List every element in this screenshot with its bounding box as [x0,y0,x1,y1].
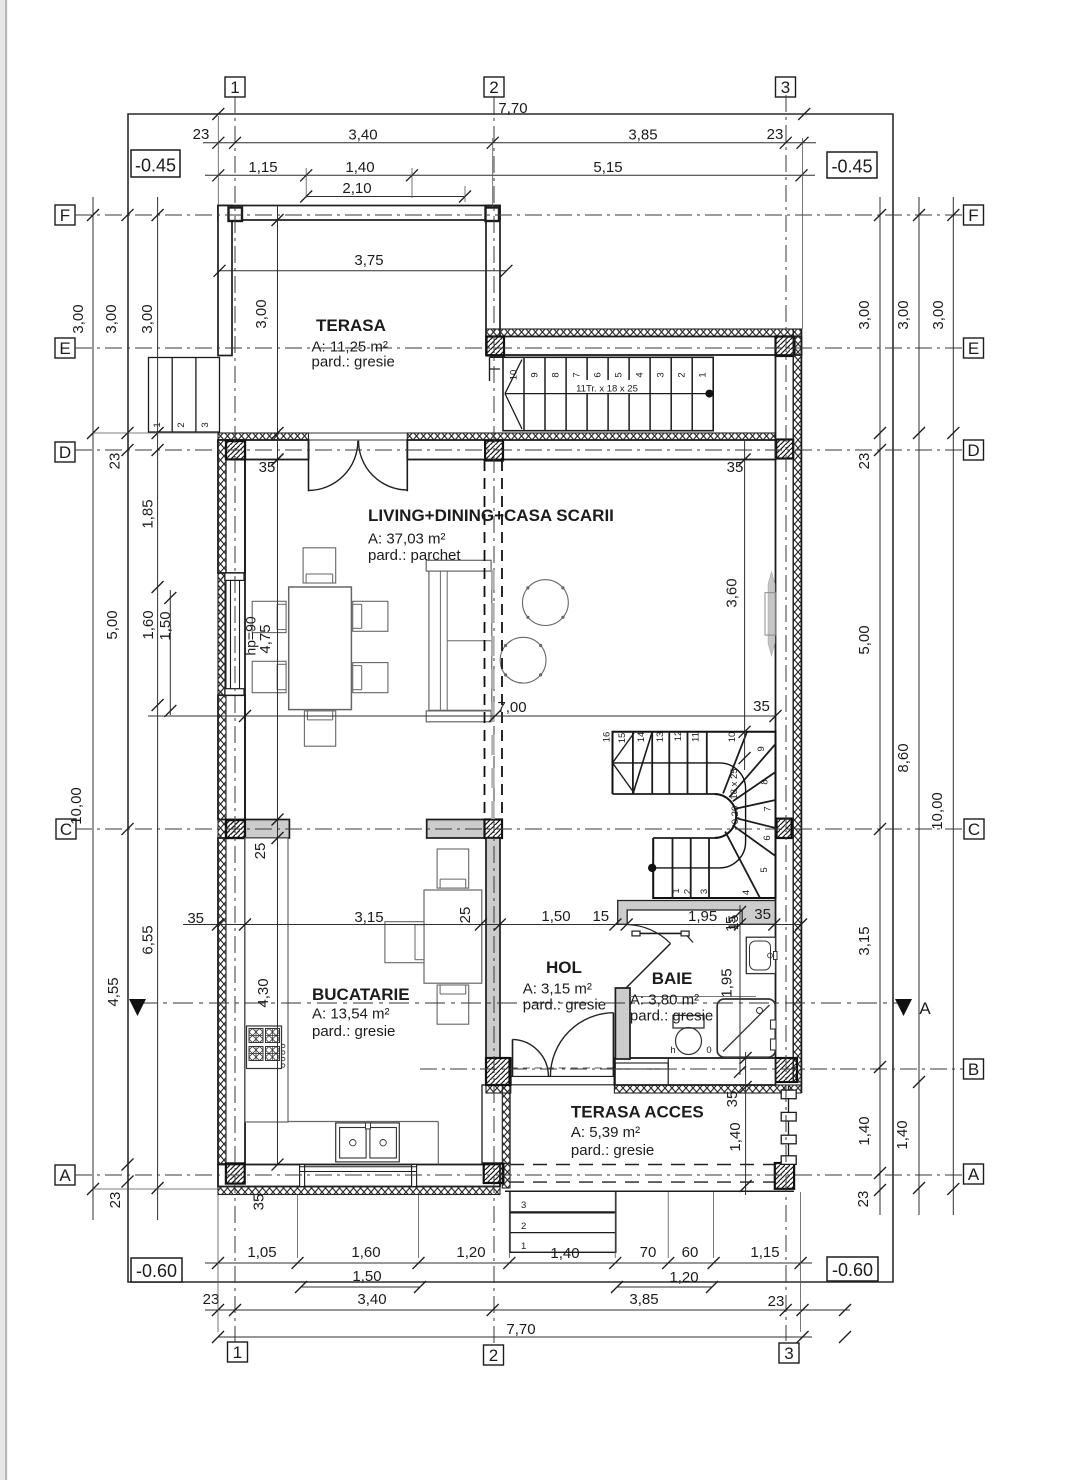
svg-text:A: A [59,1166,71,1185]
svg-text:TERASA ACCES: TERASA ACCES [571,1103,704,1122]
svg-text:pard.: gresie: pard.: gresie [630,1008,713,1025]
svg-text:1,20: 1,20 [456,1244,485,1261]
svg-text:1,95: 1,95 [719,968,736,997]
svg-text:3: 3 [781,78,790,97]
svg-text:-0.45: -0.45 [831,157,872,177]
svg-text:HOL: HOL [546,958,582,977]
svg-text:10,00: 10,00 [929,792,946,830]
svg-text:23: 23 [193,126,210,143]
svg-text:3,15: 3,15 [354,909,383,926]
svg-text:TERASA: TERASA [316,316,386,335]
svg-text:35: 35 [754,906,771,923]
svg-text:3,60: 3,60 [723,578,740,607]
svg-text:7: 7 [763,806,774,811]
svg-text:3: 3 [656,372,667,377]
svg-text:8,60: 8,60 [895,743,912,772]
svg-text:E: E [968,339,979,358]
svg-text:A: A [968,1165,980,1184]
svg-text:1,15: 1,15 [750,1244,779,1261]
svg-text:3,00: 3,00 [70,304,87,333]
svg-text:A: 13,54 m²: A: 13,54 m² [312,1006,390,1023]
svg-text:3,00: 3,00 [103,304,120,333]
svg-text:3,15: 3,15 [856,926,873,955]
svg-text:2: 2 [521,1221,526,1232]
svg-text:3,40: 3,40 [357,1291,386,1308]
svg-text:3: 3 [200,422,211,427]
svg-text:1: 1 [230,78,239,97]
svg-text:35: 35 [187,910,204,927]
svg-text:1,50: 1,50 [541,908,570,925]
svg-text:11: 11 [691,732,702,742]
svg-text:6,55: 6,55 [140,925,157,954]
svg-text:12: 12 [673,731,684,742]
svg-text:1,05: 1,05 [247,1244,276,1261]
svg-text:2: 2 [489,1346,498,1365]
svg-text:5,00: 5,00 [104,610,121,639]
svg-text:1,50: 1,50 [157,611,174,640]
svg-text:23: 23 [767,126,784,143]
svg-text:3,00: 3,00 [856,300,873,329]
svg-text:35: 35 [727,459,744,476]
svg-text:2: 2 [176,422,187,427]
svg-text:1,60: 1,60 [140,610,157,639]
svg-text:7,00: 7,00 [497,699,526,716]
svg-text:A: 3,15 m²: A: 3,15 m² [523,981,592,998]
svg-text:4: 4 [635,372,646,377]
svg-text:4: 4 [741,890,752,895]
svg-text:10: 10 [509,370,520,381]
svg-text:1,40: 1,40 [894,1120,911,1149]
svg-text:1,85: 1,85 [140,499,157,528]
svg-text:pard.: gresie: pard.: gresie [312,354,395,371]
svg-text:11Tr. x 18 x 25: 11Tr. x 18 x 25 [576,384,638,395]
svg-text:0,20: 0,20 [730,806,741,825]
svg-text:15: 15 [592,908,609,925]
svg-text:2: 2 [683,889,694,894]
svg-text:23: 23 [856,453,873,470]
svg-text:25: 25 [252,843,269,860]
svg-text:pard.: gresie: pard.: gresie [523,997,606,1014]
svg-text:1,60: 1,60 [351,1244,380,1261]
svg-text:A: 37,03 m²: A: 37,03 m² [368,531,446,548]
svg-text:23: 23 [203,1291,220,1308]
svg-text:pard.: gresie: pard.: gresie [312,1023,395,1040]
svg-text:1,40: 1,40 [727,1122,744,1151]
svg-text:3,75: 3,75 [354,252,383,269]
svg-text:5,00: 5,00 [856,625,873,654]
svg-text:A: A [919,999,931,1018]
svg-text:3: 3 [699,889,710,894]
svg-text:h: h [670,1045,675,1056]
svg-text:23: 23 [768,1293,785,1310]
svg-text:A: 5,39 m²: A: 5,39 m² [571,1124,640,1141]
svg-text:70: 70 [640,1244,657,1261]
svg-text:14: 14 [636,732,647,743]
svg-text:F: F [968,206,978,225]
svg-text:8: 8 [760,779,771,784]
svg-text:6: 6 [762,835,773,840]
svg-text:15: 15 [723,916,739,932]
svg-text:3,40: 3,40 [348,127,377,144]
svg-text:3,00: 3,00 [253,299,270,328]
svg-text:D: D [967,441,979,460]
svg-text:-0.45: -0.45 [135,156,176,176]
svg-text:7,70: 7,70 [506,1321,535,1338]
svg-text:3,85: 3,85 [628,127,657,144]
svg-text:2: 2 [677,372,688,377]
svg-text:8: 8 [551,372,562,377]
svg-text:D: D [59,443,71,462]
svg-text:35: 35 [251,1194,268,1211]
svg-text:5,15: 5,15 [593,159,622,176]
svg-text:BUCATARIE: BUCATARIE [312,985,410,1004]
svg-text:1: 1 [671,888,682,893]
svg-text:C: C [968,820,980,839]
svg-text:18 x 25: 18 x 25 [729,768,740,799]
svg-text:-0.60: -0.60 [832,1260,873,1280]
svg-text:BAIE: BAIE [652,969,693,988]
svg-text:7: 7 [572,372,583,377]
svg-text:3: 3 [521,1200,526,1211]
svg-text:25: 25 [457,907,474,924]
svg-text:1,95: 1,95 [688,908,717,925]
svg-text:13: 13 [655,732,666,743]
svg-text:35: 35 [259,459,276,476]
svg-text:35: 35 [724,1091,741,1108]
svg-text:15: 15 [617,733,628,744]
svg-text:10: 10 [727,732,738,743]
svg-text:2,10: 2,10 [342,180,371,197]
svg-text:23: 23 [107,1192,124,1209]
svg-text:A: 3,80 m²: A: 3,80 m² [630,992,699,1009]
svg-text:16: 16 [602,732,613,743]
svg-text:pard.: parchet: pard.: parchet [368,547,461,564]
svg-text:1: 1 [698,372,709,377]
svg-text:7,70: 7,70 [498,100,527,117]
svg-text:1,50: 1,50 [352,1268,381,1285]
svg-text:10,00: 10,00 [68,787,85,825]
svg-text:3,00: 3,00 [895,300,912,329]
svg-text:1: 1 [233,1343,242,1362]
svg-text:-0.60: -0.60 [136,1261,177,1281]
svg-text:1,15: 1,15 [248,159,277,176]
svg-text:23: 23 [855,1191,872,1208]
svg-text:F: F [60,206,70,225]
svg-text:E: E [59,339,70,358]
svg-text:LIVING+DINING+CASA SCARII: LIVING+DINING+CASA SCARII [368,506,614,525]
svg-text:5: 5 [759,867,770,872]
svg-text:9: 9 [756,746,767,751]
svg-text:9: 9 [530,372,541,377]
svg-text:1,20: 1,20 [669,1269,698,1286]
svg-text:1,40: 1,40 [550,1245,579,1262]
svg-text:60: 60 [682,1244,699,1261]
svg-text:35: 35 [753,698,770,715]
svg-text:1,40: 1,40 [856,1116,873,1145]
svg-text:4,55: 4,55 [105,977,122,1006]
svg-text:3: 3 [784,1344,793,1363]
svg-text:3,00: 3,00 [930,300,947,329]
svg-text:pard.: gresie: pard.: gresie [571,1142,654,1159]
svg-text:3,00: 3,00 [139,304,156,333]
svg-text:1: 1 [521,1241,526,1252]
svg-text:23: 23 [107,453,124,470]
svg-text:0: 0 [706,1045,711,1056]
svg-text:3,85: 3,85 [629,1291,658,1308]
svg-text:2: 2 [489,78,498,97]
svg-text:5: 5 [614,372,625,377]
svg-text:6: 6 [593,372,604,377]
svg-text:4,75: 4,75 [257,624,274,653]
svg-text:B: B [968,1060,979,1079]
svg-text:1,40: 1,40 [345,159,374,176]
